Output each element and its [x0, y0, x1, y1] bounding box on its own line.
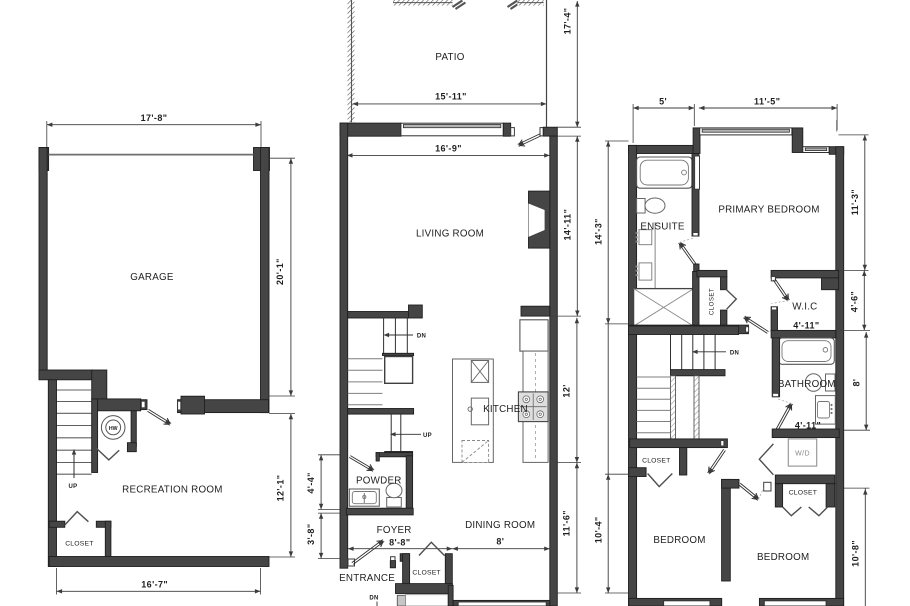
- svg-text:17'-4": 17'-4": [563, 8, 573, 35]
- svg-text:CLOSET: CLOSET: [65, 541, 93, 548]
- svg-text:16'-9": 16'-9": [435, 144, 462, 154]
- svg-text:11'-5": 11'-5": [754, 97, 780, 107]
- svg-text:RECREATION ROOM: RECREATION ROOM: [122, 485, 222, 496]
- svg-text:14'-11": 14'-11": [563, 209, 573, 241]
- svg-text:4'-6": 4'-6": [850, 291, 860, 312]
- svg-text:UP: UP: [423, 433, 432, 439]
- svg-text:8': 8': [852, 379, 862, 387]
- svg-text:W/D: W/D: [795, 451, 810, 458]
- svg-text:POWDER: POWDER: [356, 476, 402, 487]
- svg-text:4'-11": 4'-11": [793, 321, 819, 331]
- svg-text:17'-8": 17'-8": [141, 113, 168, 123]
- svg-text:PRIMARY BEDROOM: PRIMARY BEDROOM: [718, 204, 819, 215]
- svg-text:DN: DN: [417, 334, 426, 340]
- svg-text:10'-8": 10'-8": [851, 540, 861, 567]
- svg-text:11'-6": 11'-6": [561, 510, 571, 536]
- svg-text:GARAGE: GARAGE: [130, 272, 174, 283]
- svg-text:BEDROOM: BEDROOM: [653, 535, 705, 546]
- svg-text:ENSUITE: ENSUITE: [640, 222, 684, 233]
- svg-text:CLOSET: CLOSET: [642, 457, 670, 464]
- svg-text:DN: DN: [369, 596, 378, 602]
- svg-text:FOYER: FOYER: [377, 525, 412, 536]
- svg-text:BEDROOM: BEDROOM: [757, 552, 809, 563]
- svg-text:ENTRANCE: ENTRANCE: [339, 573, 395, 584]
- svg-text:11'-3": 11'-3": [850, 189, 860, 215]
- svg-text:KITCHEN: KITCHEN: [483, 404, 528, 415]
- svg-text:DN: DN: [730, 350, 739, 356]
- svg-text:15'-11": 15'-11": [435, 91, 467, 101]
- svg-text:4'-4": 4'-4": [306, 472, 316, 493]
- svg-text:CLOSET: CLOSET: [412, 570, 440, 577]
- svg-text:BATHROOM: BATHROOM: [778, 379, 836, 390]
- svg-text:CLOSET: CLOSET: [709, 288, 716, 315]
- svg-text:5': 5': [659, 97, 667, 107]
- svg-text:PATIO: PATIO: [435, 52, 464, 63]
- svg-text:20'-1": 20'-1": [275, 258, 285, 285]
- svg-text:12'-1": 12'-1": [276, 475, 286, 502]
- svg-text:LIVING ROOM: LIVING ROOM: [416, 229, 484, 240]
- svg-text:12': 12': [561, 384, 571, 397]
- svg-text:3'-8": 3'-8": [306, 523, 316, 544]
- svg-text:HW: HW: [109, 426, 118, 432]
- svg-text:W.I.C: W.I.C: [792, 302, 817, 313]
- svg-text:14'-3": 14'-3": [594, 218, 604, 245]
- svg-text:DINING ROOM: DINING ROOM: [465, 520, 535, 531]
- svg-text:10'-4": 10'-4": [594, 516, 604, 543]
- svg-text:CLOSET: CLOSET: [789, 489, 817, 496]
- svg-text:UP: UP: [69, 484, 78, 490]
- svg-text:16'-7": 16'-7": [141, 579, 168, 589]
- svg-text:8': 8': [496, 537, 504, 547]
- svg-text:8'-8": 8'-8": [389, 538, 410, 548]
- svg-text:4'-11": 4'-11": [795, 421, 821, 431]
